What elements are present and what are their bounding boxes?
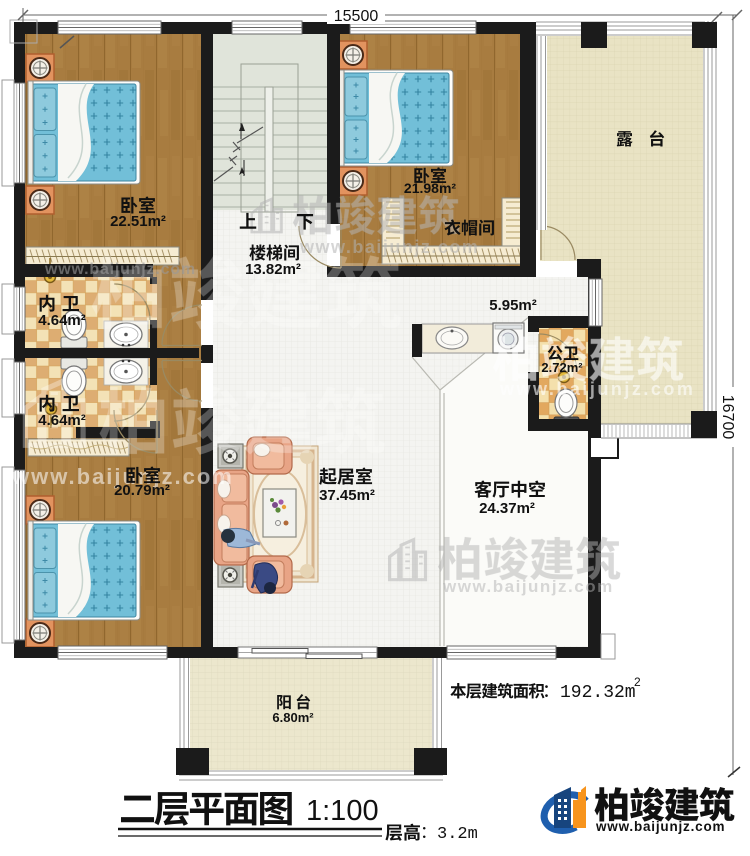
svg-text:2: 2 [634, 675, 641, 689]
svg-text:1:100: 1:100 [306, 795, 379, 827]
svg-text:www.baijunjz.com: www.baijunjz.com [595, 819, 725, 834]
svg-text:16700: 16700 [719, 395, 736, 440]
svg-text:4.64m²: 4.64m² [38, 412, 86, 429]
svg-text:13.82m²: 13.82m² [245, 261, 301, 278]
svg-text:：3.2m: ：3.2m [420, 825, 478, 844]
svg-text:www.baijunjz.com: www.baijunjz.com [499, 379, 695, 399]
svg-text:21.98m²: 21.98m² [404, 180, 456, 196]
svg-text:www.baijunjz.com: www.baijunjz.com [442, 577, 614, 596]
svg-text:：192.32m: ：192.32m [542, 683, 636, 703]
svg-text:www.baijunjz.com: www.baijunjz.com [44, 261, 196, 278]
svg-text:2.72m²: 2.72m² [541, 360, 583, 375]
svg-text:22.51m²: 22.51m² [110, 213, 166, 230]
svg-text:24.37m²: 24.37m² [479, 500, 535, 517]
svg-text:20.79m²: 20.79m² [114, 482, 170, 499]
svg-text:4.64m²: 4.64m² [38, 312, 86, 329]
svg-text:37.45m²: 37.45m² [319, 487, 375, 504]
svg-text:15500: 15500 [334, 8, 379, 25]
svg-text:5.95m²: 5.95m² [489, 297, 537, 314]
svg-text:6.80m²: 6.80m² [272, 710, 314, 725]
svg-text:www.baijunjz.com: www.baijunjz.com [299, 237, 479, 257]
